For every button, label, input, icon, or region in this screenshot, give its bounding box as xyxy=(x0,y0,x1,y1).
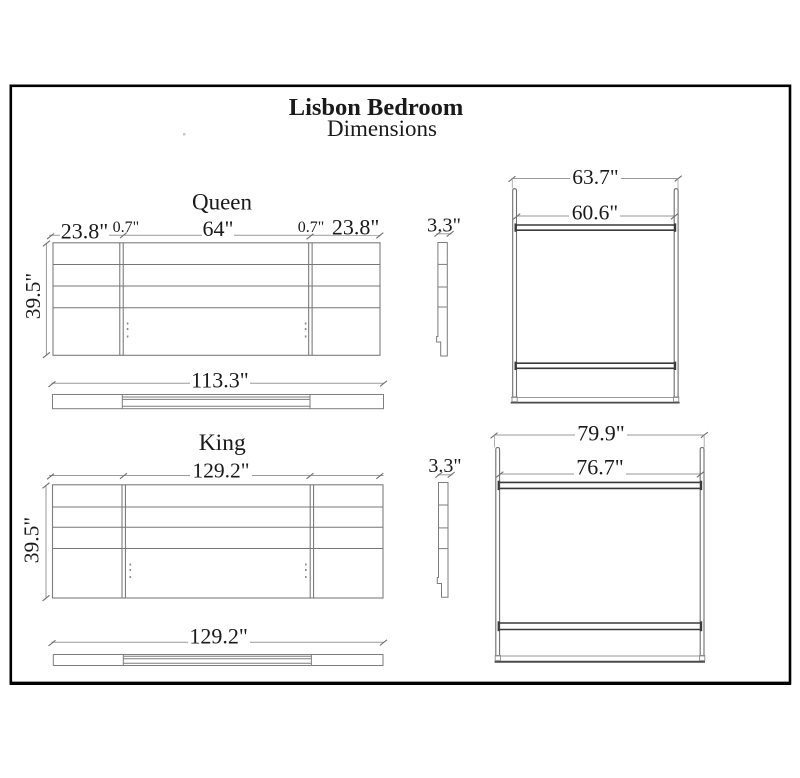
svg-text:39.5": 39.5" xyxy=(21,273,45,319)
svg-text:0.7": 0.7" xyxy=(298,219,325,236)
svg-text:King: King xyxy=(199,430,246,456)
svg-text:113.3": 113.3" xyxy=(191,368,249,393)
svg-text:23.8": 23.8" xyxy=(332,215,379,240)
svg-text:64": 64" xyxy=(203,216,234,241)
svg-text:63.7": 63.7" xyxy=(572,165,618,189)
svg-text:60.6": 60.6" xyxy=(572,201,618,225)
svg-text:Queen: Queen xyxy=(192,189,253,214)
svg-text:39.5": 39.5" xyxy=(20,517,44,563)
svg-text:3.3": 3.3" xyxy=(428,455,461,477)
svg-text:76.7": 76.7" xyxy=(576,455,623,480)
svg-text:129.2": 129.2" xyxy=(192,458,249,482)
svg-text:79.9": 79.9" xyxy=(577,421,624,446)
svg-text:Dimensions: Dimensions xyxy=(327,116,437,141)
svg-text:129.2": 129.2" xyxy=(189,624,247,649)
svg-text:23.8": 23.8" xyxy=(61,218,108,243)
